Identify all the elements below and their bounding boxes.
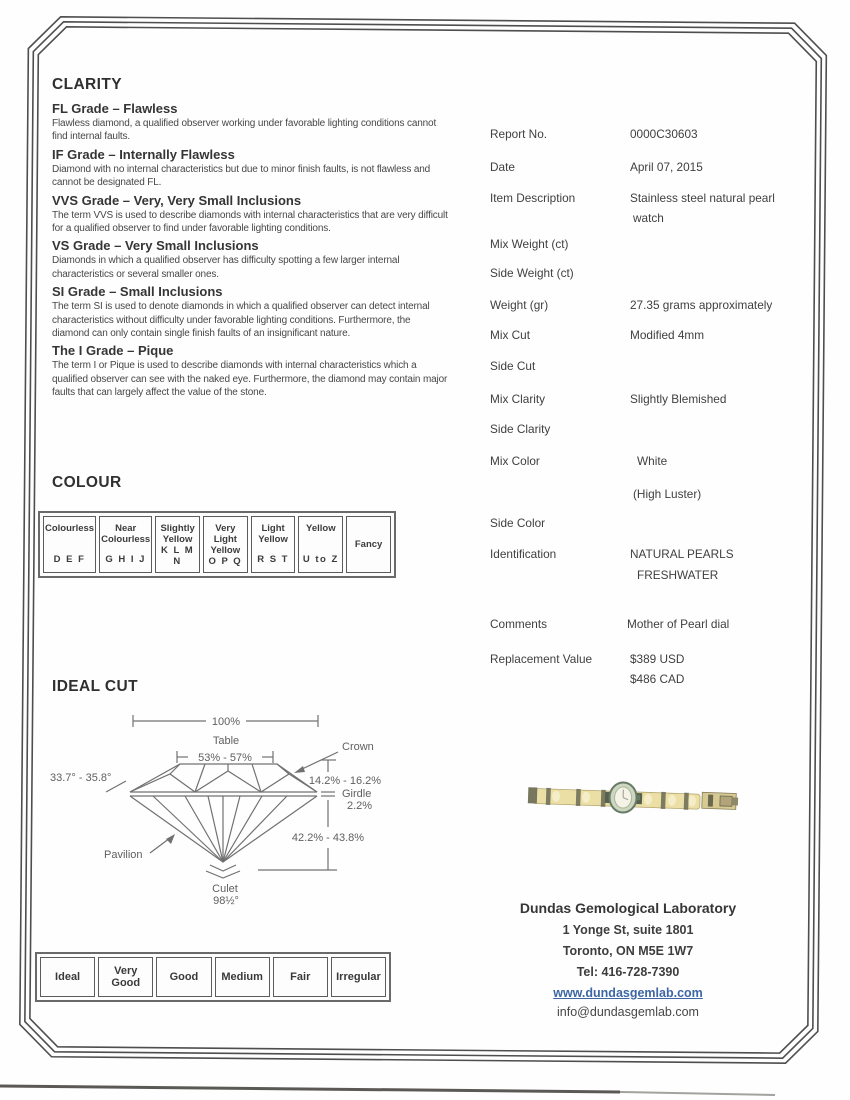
crown-angle-label: 33.7° - 35.8° [50, 772, 111, 784]
grade-heading: IF Grade – Internally Flawless [52, 147, 450, 162]
laboratory-info: Dundas Gemological Laboratory 1 Yonge St… [478, 900, 778, 1019]
grade-body: The term I or Pique is used to describe … [52, 359, 450, 399]
clarity-grade-if: IF Grade – Internally Flawless Diamond w… [52, 147, 450, 190]
report-value-line2: FRESHWATER [637, 568, 718, 582]
report-row-comments: CommentsMother of Pearl dial [490, 617, 825, 631]
girdle-label: Girdle [342, 788, 371, 800]
clarity-grade-i: The I Grade – Pique The term I or Pique … [52, 343, 450, 399]
girdle-pct: 2.2% [347, 800, 372, 812]
report-row-item-description: Item DescriptionStainless steel natural … [490, 191, 825, 205]
colour-cell-yellow: Yellow U to Z [298, 516, 343, 573]
lab-address-line2: Toronto, ON M5E 1W7 [478, 944, 778, 958]
report-row-date: DateApril 07, 2015 [490, 160, 825, 174]
report-row-side-color: Side Color [490, 516, 825, 530]
pavilion-arrowhead [166, 834, 175, 844]
report-row-mix-cut: Mix CutModified 4mm [490, 328, 825, 342]
colour-title: COLOUR [52, 474, 122, 492]
report-row-identification: IdentificationNATURAL PEARLSFRESHWATER [490, 547, 825, 561]
cut-cell-good: Good [156, 957, 211, 997]
colour-cell-fancy: Fancy [346, 516, 391, 573]
report-row-mix-color: Mix ColorWhite [490, 454, 825, 468]
report-value: $389 USD [630, 652, 684, 666]
report-value-line2: watch [633, 211, 664, 225]
grade-body: The term SI is used to denote diamonds i… [52, 300, 450, 340]
report-row-weight-gr: Weight (gr)27.35 grams approximately [490, 298, 825, 312]
report-value-line2: $486 CAD [630, 672, 684, 686]
report-value: Slightly Blemished [630, 392, 726, 406]
grade-heading: VVS Grade – Very, Very Small Inclusions [52, 193, 450, 208]
report-row-report-no: Report No.0000C30603 [490, 127, 825, 141]
culet-value: 98½° [213, 895, 239, 907]
clarity-title: CLARITY [52, 76, 450, 94]
cut-cell-very-good: Very Good [98, 957, 153, 997]
cut-cell-medium: Medium [215, 957, 270, 997]
cut-cell-irregular: Irregular [331, 957, 386, 997]
cut-cell-ideal: Ideal [40, 957, 95, 997]
clarity-grade-vs: VS Grade – Very Small Inclusions Diamond… [52, 238, 450, 281]
grade-body: The term VVS is used to describe diamond… [52, 209, 450, 236]
report-row-side-cut: Side Cut [490, 359, 825, 373]
report-value: April 07, 2015 [630, 160, 703, 174]
certificate-page: CLARITY FL Grade – Flawless Flawless dia… [0, 0, 850, 1100]
ideal-cut-title: IDEAL CUT [52, 678, 138, 696]
dim-total-width: 100% [212, 716, 240, 728]
dim-table-range: 53% - 57% [198, 752, 252, 764]
scan-edge-line-fade [620, 1092, 775, 1095]
grade-heading: VS Grade – Very Small Inclusions [52, 238, 450, 253]
diamond-cut-diagram: 100% Table 53% - 57% Crown [40, 700, 440, 915]
grade-heading: FL Grade – Flawless [52, 101, 450, 116]
grade-body: Diamond with no internal characteristics… [52, 163, 450, 190]
report-row-high-luster: (High Luster) [490, 487, 825, 501]
clarity-grade-vvs: VVS Grade – Very, Very Small Inclusions … [52, 193, 450, 236]
crown-arrowhead [294, 766, 305, 773]
lab-website-link[interactable]: www.dundasgemlab.com [478, 986, 778, 1000]
lab-email: info@dundasgemlab.com [478, 1005, 778, 1019]
pearl-watch-photo [526, 772, 746, 827]
colour-grade-table: Colourless D E F Near Colourless G H I J… [38, 511, 396, 578]
pavilion-label: Pavilion [104, 849, 143, 861]
report-row-mix-weight: Mix Weight (ct) [490, 237, 825, 251]
report-value: NATURAL PEARLS [630, 547, 734, 561]
clarity-grade-si: SI Grade – Small Inclusions The term SI … [52, 284, 450, 340]
report-row-mix-clarity: Mix ClaritySlightly Blemished [490, 392, 825, 406]
lab-phone: Tel: 416-728-7390 [478, 965, 778, 979]
report-value: Stainless steel natural pearl [630, 191, 775, 205]
report-value: 0000C30603 [630, 127, 698, 141]
scan-edge-line [0, 1086, 620, 1092]
colour-cell-slightly-yellow: Slightly Yellow K L M N [155, 516, 200, 573]
lab-name: Dundas Gemological Laboratory [478, 900, 778, 916]
report-row-side-clarity: Side Clarity [490, 422, 825, 436]
report-value: 27.35 grams approximately [630, 298, 772, 312]
culet-label: Culet [212, 883, 238, 895]
grade-heading: SI Grade – Small Inclusions [52, 284, 450, 299]
report-value: Modified 4mm [630, 328, 704, 342]
lab-address-line1: 1 Yonge St, suite 1801 [478, 923, 778, 937]
report-row-replacement-value: Replacement Value$389 USD$486 CAD [490, 652, 825, 666]
colour-cell-light-yellow: Light Yellow R S T [251, 516, 296, 573]
pavilion-depth-label: 42.2% - 43.8% [292, 832, 364, 844]
crown-label: Crown [342, 741, 374, 753]
report-value: Mother of Pearl dial [627, 617, 729, 631]
cut-cell-fair: Fair [273, 957, 328, 997]
report-value: White [637, 454, 667, 468]
colour-cell-very-light-yellow: Very Light Yellow O P Q [203, 516, 248, 573]
grade-body: Diamonds in which a qualified observer h… [52, 254, 450, 281]
dim-table-label: Table [213, 735, 239, 747]
crown-height-label: 14.2% - 16.2% [309, 775, 381, 787]
colour-cell-colourless: Colourless D E F [43, 516, 96, 573]
report-row-side-weight: Side Weight (ct) [490, 266, 825, 280]
grade-body: Flawless diamond, a qualified observer w… [52, 117, 450, 144]
clarity-grade-fl: FL Grade – Flawless Flawless diamond, a … [52, 101, 450, 144]
grade-heading: The I Grade – Pique [52, 343, 450, 358]
cut-scale-table: Ideal Very Good Good Medium Fair Irregul… [35, 952, 391, 1002]
colour-cell-near-colourless: Near Colourless G H I J [99, 516, 152, 573]
report-value: (High Luster) [633, 487, 701, 501]
clarity-section: CLARITY FL Grade – Flawless Flawless dia… [52, 76, 450, 403]
